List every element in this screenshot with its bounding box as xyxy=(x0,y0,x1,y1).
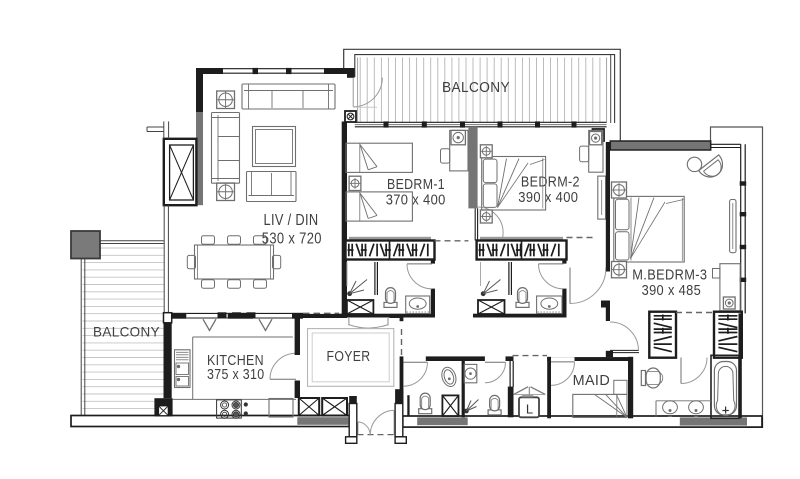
svg-text:390 x 485: 390 x 485 xyxy=(642,283,702,299)
svg-text:370 x 400: 370 x 400 xyxy=(386,193,446,209)
svg-text:BALCONY: BALCONY xyxy=(93,324,160,340)
svg-text:L: L xyxy=(526,402,533,417)
svg-text:390 x 400: 390 x 400 xyxy=(518,190,578,206)
svg-text:530 x 720: 530 x 720 xyxy=(262,230,322,247)
svg-text:BALCONY: BALCONY xyxy=(442,80,510,96)
svg-text:BEDRM-2: BEDRM-2 xyxy=(521,175,580,191)
svg-text:MAID: MAID xyxy=(573,372,611,389)
svg-text:M.BEDRM-3: M.BEDRM-3 xyxy=(632,267,707,283)
svg-text:375 x 310: 375 x 310 xyxy=(207,367,265,383)
svg-text:BEDRM-1: BEDRM-1 xyxy=(387,177,445,193)
svg-text:LIV / DIN: LIV / DIN xyxy=(264,212,319,229)
svg-text:FOYER: FOYER xyxy=(327,349,371,365)
